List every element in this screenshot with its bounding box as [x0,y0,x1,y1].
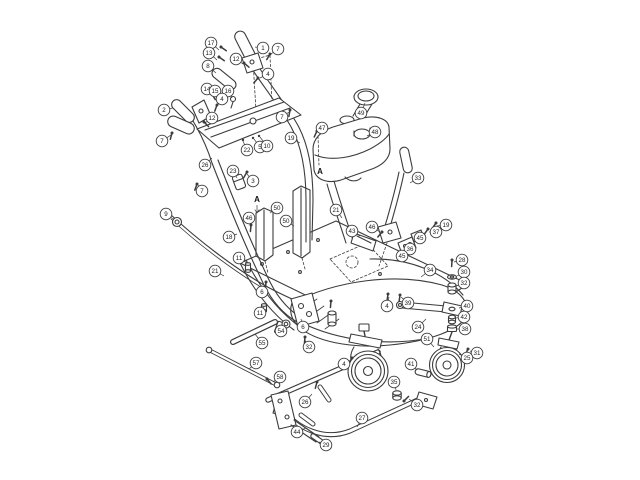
reference-label-A: A [254,195,260,213]
callout-3: 3 [247,174,259,187]
callout-number: 21 [212,268,219,275]
callout-number: 46 [246,215,253,222]
callout-number: 46 [369,224,376,231]
callout-number: 19 [288,135,295,142]
callout-number: 3 [251,178,255,185]
callout-32: 32 [409,399,423,411]
callout-33: 33 [410,172,424,184]
callout-number: 6 [301,324,305,331]
callout-number: 6 [260,289,264,296]
callout-45: 45 [396,250,408,262]
callout-number: 9 [164,211,168,218]
callout-45: 45 [414,232,426,244]
callout-number: 55 [259,340,266,347]
callout-46: 46 [366,221,380,233]
callout-number: 37 [433,229,440,236]
callout-number: 11 [236,255,243,262]
callout-10: 10 [260,137,273,152]
callout-number: 50 [274,205,281,212]
callout-41: 41 [405,358,417,370]
callout-number: 36 [407,246,414,253]
callout-18: 18 [223,231,237,243]
callout-7: 7 [271,43,284,55]
callout-57: 57 [249,357,262,369]
callout-21: 21 [209,265,224,277]
callout-number: 34 [427,267,434,274]
exploded-parts-diagram: 1713817124141516421277192251026233795046… [0,0,640,480]
callout-number: 41 [408,361,415,368]
callout-number: 8 [206,63,210,70]
callout-12: 12 [230,53,243,65]
callout-7: 7 [196,185,208,197]
callout-number: 27 [359,415,366,422]
callout-number: 12 [233,56,240,63]
callout-9: 9 [160,208,173,220]
callout-54: 54 [275,325,287,337]
fuel-tank-assembly [313,89,390,243]
callout-number: 28 [459,257,466,264]
callout-number: 33 [415,175,422,182]
callout-number: 11 [257,310,264,317]
callout-number: 24 [415,324,422,331]
parts-diagram-page: 1713817124141516421277192251026233795046… [0,0,640,480]
svg-text:A: A [317,167,323,176]
reference-label-A: A [317,167,323,176]
callout-8: 8 [202,60,216,73]
callout-22: 22 [241,141,253,156]
callout-number: 57 [253,360,260,367]
callout-11: 11 [254,307,266,319]
callout-number: 7 [160,138,164,145]
callout-28: 28 [454,254,468,266]
callout-number: 26 [302,399,309,406]
callout-number: 45 [399,253,406,260]
svg-text:A: A [254,195,260,204]
callout-7: 7 [156,135,171,147]
callout-number: 18 [226,234,233,241]
callout-number: 48 [372,129,379,136]
callout-number: 4 [385,303,389,310]
callout-number: 23 [230,168,237,175]
callout-58: 58 [273,371,286,383]
callout-number: 49 [358,110,365,117]
callout-number: 58 [277,374,284,381]
callout-number: 7 [276,46,280,53]
callout-number: 47 [319,125,326,132]
callout-number: 32 [306,344,313,351]
callout-4: 4 [216,93,228,105]
callout-26: 26 [199,158,212,171]
callout-number: 40 [464,303,471,310]
callout-number: 17 [208,40,215,47]
callout-number: 31 [474,350,481,357]
callout-number: 4 [342,361,346,368]
callout-number: 32 [414,402,421,409]
callout-37: 37 [429,226,442,238]
callout-number: 1 [261,45,265,52]
callout-43: 43 [346,225,360,237]
callout-50: 50 [270,202,283,214]
callout-number: 44 [294,429,301,436]
callout-number: 51 [424,336,431,343]
callout-number: 25 [464,355,471,362]
callout-number: 35 [391,379,398,386]
callout-number: 7 [280,114,284,121]
callout-number: 21 [333,207,340,214]
callout-number: 4 [266,71,270,78]
callout-46: 46 [243,212,255,225]
callout-2: 2 [158,104,173,116]
callout-30: 30 [457,266,470,278]
callout-26: 26 [299,394,312,408]
callout-number: 45 [417,235,424,242]
callout-number: 13 [206,50,213,57]
callout-47: 47 [316,122,328,134]
callout-number: 26 [202,162,209,169]
callout-number: 38 [462,326,469,333]
callout-number: 19 [443,222,450,229]
callout-55: 55 [255,334,268,349]
callout-number: 42 [461,314,468,321]
callout-number: 12 [209,115,216,122]
callout-number: 2 [162,107,166,114]
callout-35: 35 [388,376,400,390]
callout-number: 50 [283,218,290,225]
callout-11: 11 [233,252,247,264]
callout-number: 7 [200,188,204,195]
callout-4: 4 [260,68,274,80]
callout-number: 54 [278,328,285,335]
callout-number: 39 [405,300,412,307]
callout-number: 43 [349,228,356,235]
callout-number: 4 [220,96,224,103]
callout-50: 50 [280,215,294,227]
callout-number: 30 [461,269,468,276]
callout-19: 19 [285,132,300,144]
callout-1: 1 [255,42,269,54]
callout-21: 21 [330,204,342,218]
callout-13: 13 [203,47,217,60]
callout-number: 29 [323,442,330,449]
callout-number: 22 [244,147,251,154]
callout-number: 15 [212,88,219,95]
callout-number: 10 [264,143,271,150]
callout-number: 32 [461,280,468,287]
